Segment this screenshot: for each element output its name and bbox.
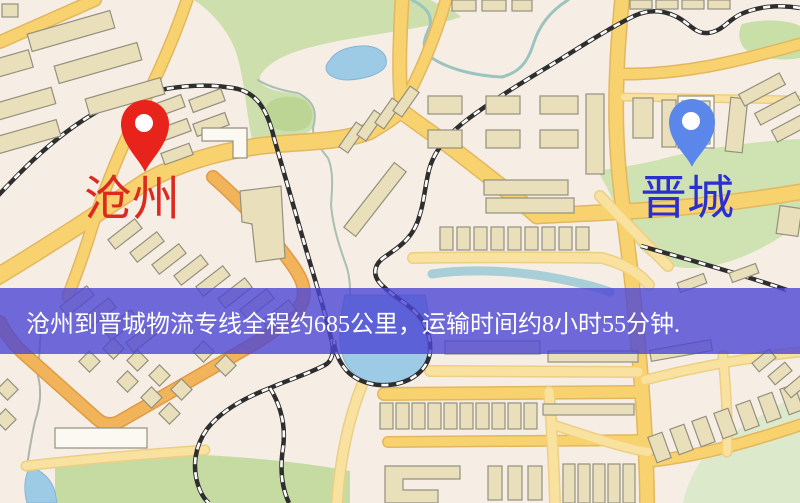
route-info-text: 沧州到晋城物流专线全程约685公里，运输时间约8小时55分钟.	[26, 304, 680, 339]
origin-city-label: 沧州	[84, 176, 180, 224]
route-info-banner: 沧州到晋城物流专线全程约685公里，运输时间约8小时55分钟.	[0, 288, 800, 354]
destination-city-label: 晋城	[640, 176, 734, 223]
map-canvas[interactable]	[0, 0, 800, 503]
map-screenshot: 沧州 晋城 沧州到晋城物流专线全程约685公里，运输时间约8小时55分钟.	[0, 0, 800, 503]
